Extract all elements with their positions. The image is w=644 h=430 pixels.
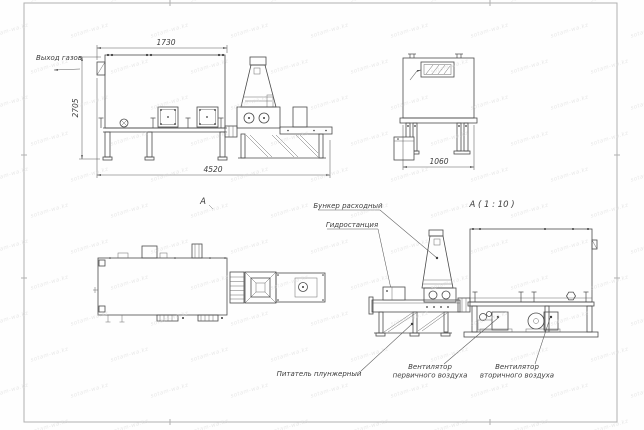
feeder-callout: Питатель плунжерный [277,323,414,378]
detail-anchor-bolts [473,292,589,302]
detail-title: A ( 1 : 10 ) [468,200,514,210]
feeder-label: Питатель плунжерный [277,370,362,378]
plan-title: A [199,197,206,207]
end-view: 1060 [394,54,477,170]
gas-outlet-stub [97,62,105,75]
dim-1730: 1730 [97,38,227,60]
plan-view: A [93,197,325,322]
hex-fitting [567,292,576,300]
furnace-body-detail [470,228,597,302]
deck-box [293,107,307,127]
dim-1060-value: 1060 [429,157,448,166]
hydro-unit-end [394,137,414,160]
dim-4520-value: 4520 [203,165,222,174]
frame-fold-marks [21,0,620,425]
furnace-body-end [403,58,474,118]
primary-fan-label-1: Вентилятор [408,363,452,371]
hydro-label: Гидростанция [326,221,378,229]
incline-truss [238,134,326,158]
plan-top-fittings [109,244,226,259]
furnace-body-plan [98,258,227,315]
hydro-callout: Гидростанция [326,221,392,290]
plan-bottom-fittings [106,315,224,322]
hopper-callout: Бункер расходный [313,202,438,259]
feeder-plan [276,273,325,302]
fan-box [237,107,280,128]
feeder-deck [280,107,332,134]
gas-outlet-callout: Выход газов [36,54,82,70]
secondary-air-fan [526,312,560,332]
secondary-fan-label-2: вторичного воздуха [480,372,554,380]
anchor-bolts [99,118,224,128]
support-frame [103,128,227,160]
inspection-door [197,107,218,127]
dim-2705-value: 2705 [71,98,80,117]
inspection-door [158,107,178,127]
duct-flange-plan [230,272,244,303]
hydro-station [383,287,405,300]
gas-outlet-label: Выход газов [36,54,82,62]
hopper-plan [245,272,276,303]
vent-leader [410,70,421,80]
primary-air-fan [478,312,512,333]
roof-posts [408,54,463,58]
plan-view-title: A [199,197,213,209]
plan-side-fittings [93,260,105,312]
secondary-fan-label-1: Вентилятор [495,363,539,371]
side-view: 1730 2705 4520 Выход газов [36,38,332,178]
dim-1730-value: 1730 [156,38,175,47]
burner-tower [241,57,276,107]
drawing-sheet: 1730 2705 4520 Выход газов [0,0,644,430]
primary-fan-label-2: первичного воздуха [393,372,468,380]
vent-opening [410,62,454,80]
dim-2705: 2705 [71,57,101,159]
drain-valve [120,119,128,127]
sheet-frame [21,0,620,425]
base-flange [400,118,477,123]
secondary-fan-callout: Вентилятор вторичного воздуха [480,318,554,380]
cad-drawing: 1730 2705 4520 Выход газов [0,0,644,430]
hopper-label: Бункер расходный [313,202,383,210]
